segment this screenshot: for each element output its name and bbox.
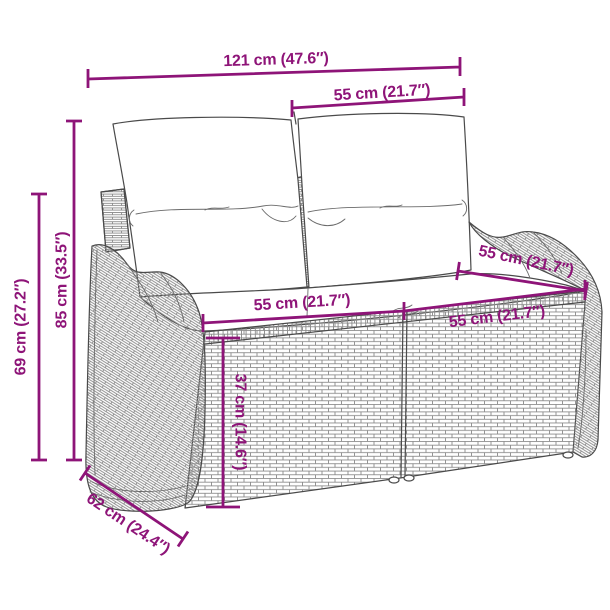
bench-foot (563, 452, 573, 458)
product-dimension-diagram: 121 cm (47.6″) 55 cm (21.7″) 85 cm (33.5… (0, 0, 610, 610)
back-cushion-left (113, 117, 307, 297)
bench-foot (404, 475, 414, 481)
dimension-total-height-label: 85 cm (33.5″) (54, 232, 71, 329)
dimension-back-height: 69 cm (27.2″) (13, 194, 48, 460)
back-cushion-right (298, 113, 471, 288)
bench-foot (389, 477, 399, 483)
dimension-back-height-label: 69 cm (27.2″) (13, 279, 30, 376)
dimension-overall-width-label: 121 cm (47.6″) (223, 50, 329, 70)
diagram-svg: 121 cm (47.6″) 55 cm (21.7″) 85 cm (33.5… (0, 0, 610, 610)
dimension-back-height-line (31, 194, 47, 460)
dimension-total-height: 85 cm (33.5″) (54, 121, 83, 460)
dimension-seat-height-label: 37 cm (14.6″) (232, 374, 249, 471)
dimension-back-cushion-width: 55 cm (21.7″) (292, 82, 464, 117)
